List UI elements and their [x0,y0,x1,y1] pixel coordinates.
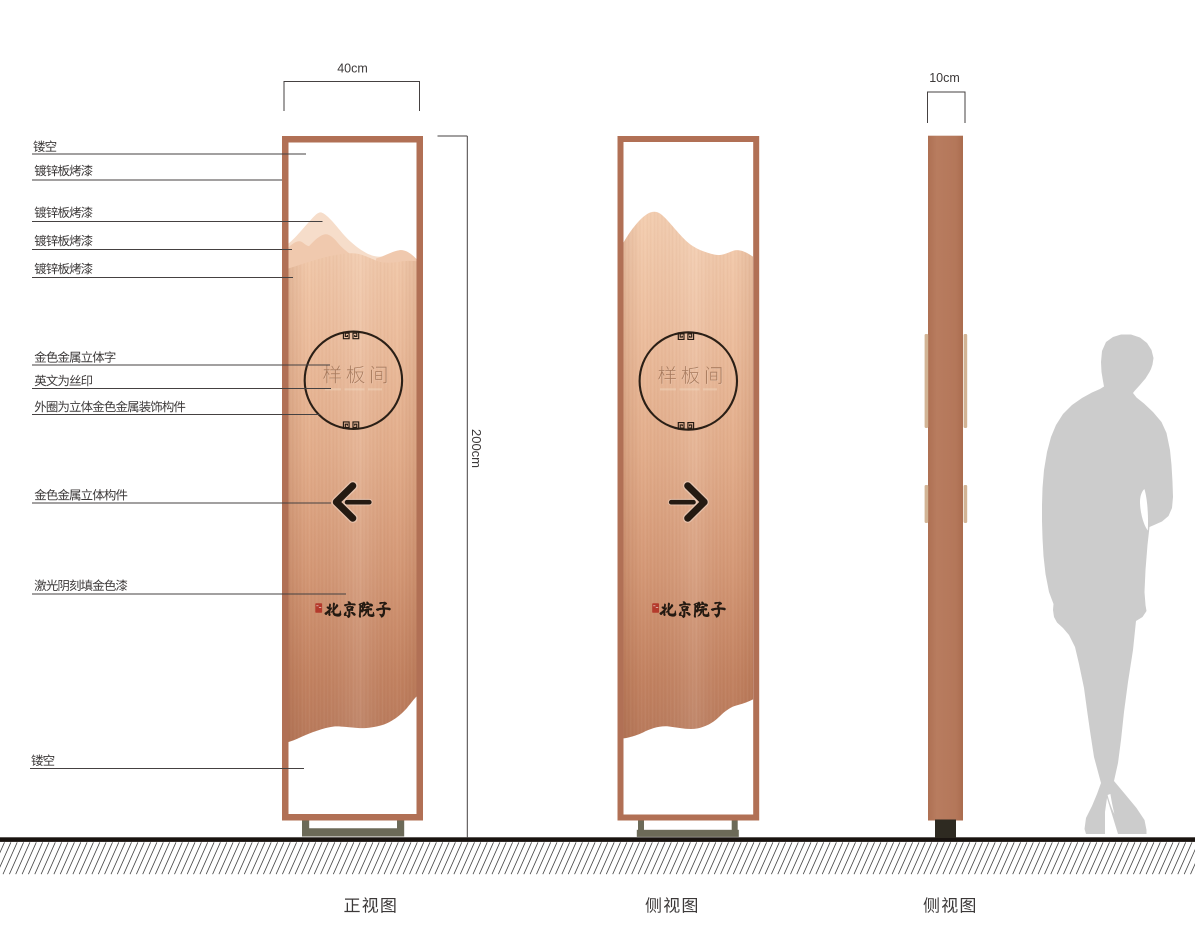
svg-text:200cm: 200cm [469,429,484,468]
svg-text:10cm: 10cm [929,71,960,85]
svg-text:40cm: 40cm [337,62,368,76]
